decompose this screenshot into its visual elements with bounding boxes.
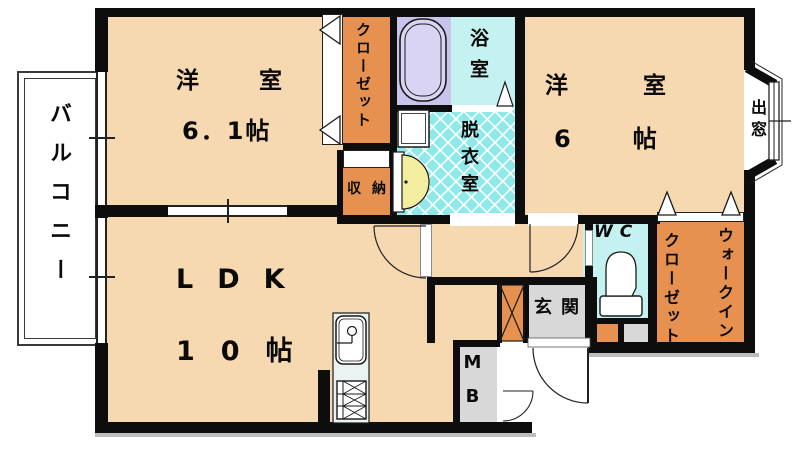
wc-sub-cabinet xyxy=(594,322,618,342)
bay-window-label: 出窓 xyxy=(749,99,765,143)
wc-sub-step xyxy=(623,324,649,342)
bathtub-area xyxy=(397,12,451,107)
wall-bath-bottom xyxy=(397,105,452,112)
walk-in-closet-label-2: クローゼット xyxy=(662,232,678,346)
door-swing-arc-meter-box xyxy=(503,391,533,421)
wall-wc-sub-b xyxy=(618,322,624,342)
wall-shadow-southeast xyxy=(588,353,759,357)
walk-in-closet-label-1: ウォークイン xyxy=(716,227,732,341)
wall-top xyxy=(95,8,755,17)
sliding-opening-tick xyxy=(227,199,229,223)
wall-wc-east xyxy=(648,224,657,342)
doorway-wc xyxy=(585,230,593,266)
storage-label: 収納 xyxy=(347,182,397,196)
wall-hall-divider xyxy=(427,277,597,285)
storage-door xyxy=(343,150,390,168)
wall-mb-left xyxy=(453,340,460,432)
door-swing-arc-front-door xyxy=(533,348,588,403)
balcony-label: バルコニー xyxy=(47,102,69,297)
room-dressing xyxy=(397,107,515,217)
wall-kitchen-stub xyxy=(318,370,330,422)
wall-shoebox-right xyxy=(523,283,529,343)
window-left-lower-tick xyxy=(89,276,115,278)
wall-midband-a xyxy=(343,215,450,224)
wall-shadow-bottom xyxy=(95,433,536,437)
wall-shoebox-left xyxy=(497,283,502,343)
floor-plan: バルコニー 洋室 6．1帖 洋室 6帖 LDK 10帖 クローゼット 収納 浴室… xyxy=(0,0,800,462)
hallway xyxy=(430,220,600,282)
bedroom1-label: 洋室 xyxy=(176,70,342,93)
wall-right-a xyxy=(744,8,755,70)
room-bedroom1 xyxy=(100,12,350,212)
bedroom2-size: 6帖 xyxy=(554,127,719,151)
door-gap-meter-box xyxy=(497,347,503,422)
entrance-hall xyxy=(430,282,500,344)
wall-midband-b xyxy=(515,215,528,224)
room-bedroom2 xyxy=(523,12,744,217)
bedroom1-size: 6．1帖 xyxy=(182,119,271,143)
window-left-lower xyxy=(96,218,107,343)
bathroom-label: 浴室 xyxy=(468,28,487,90)
entrance-label: 玄関 xyxy=(534,299,588,317)
meter-box-label: MB xyxy=(463,352,481,420)
dressing-room-label: 脱衣室 xyxy=(459,120,477,201)
window-left-upper-tick xyxy=(89,137,115,139)
wall-wc-sub-a xyxy=(585,322,594,342)
door-gap-bedroom2 xyxy=(528,213,578,226)
shoe-cabinet xyxy=(500,285,524,341)
wc-label: WC xyxy=(594,224,639,241)
doorway-ldk xyxy=(420,224,432,277)
wall-closet-bottom xyxy=(343,143,390,150)
door-gap-dressing xyxy=(450,213,515,226)
wall-hall-vert xyxy=(427,277,435,343)
wall-left-a xyxy=(95,8,108,72)
wall-bottom xyxy=(95,422,532,433)
closet-label: クローゼット xyxy=(355,22,370,130)
ldk-label: LDK xyxy=(176,266,309,293)
bedroom2-label: 洋室 xyxy=(545,75,741,98)
wall-left-c xyxy=(95,343,108,433)
wall-right-b xyxy=(744,170,755,353)
ldk-size: 10帖 xyxy=(176,338,319,365)
folding-door-walkin xyxy=(657,212,744,222)
door-gap-bathroom xyxy=(452,105,512,112)
wall-bedroom2-west xyxy=(515,8,525,224)
entrance-step xyxy=(528,338,590,347)
wall-mb-top xyxy=(453,340,500,347)
